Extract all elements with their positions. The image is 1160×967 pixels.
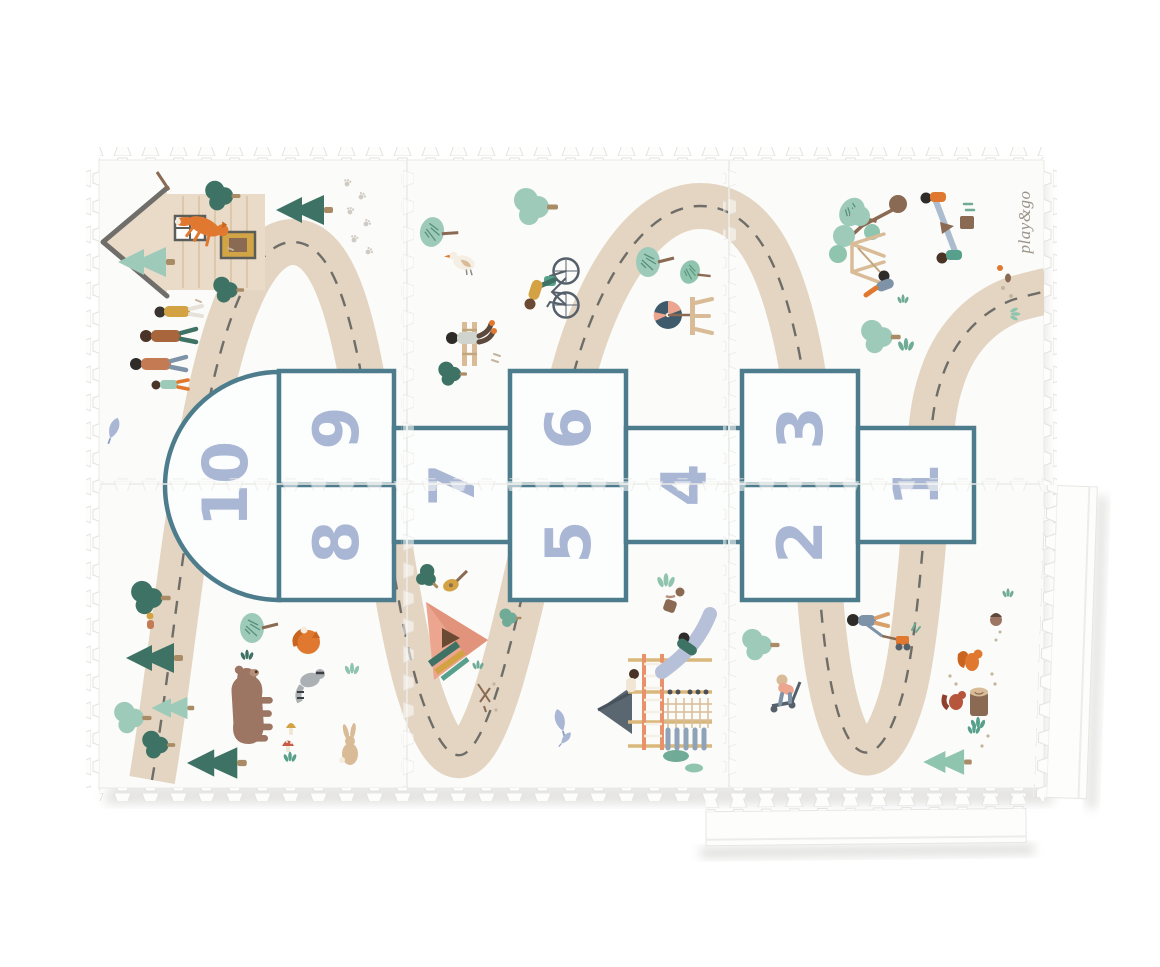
loose-edge-strip-vertical [1033,485,1107,808]
hopscotch-number: 2 [764,520,837,563]
moss-icon [663,750,689,762]
tile-seam-vertical [723,160,736,788]
hopscotch-number: 3 [764,406,837,449]
loose-edge-strip-horizontal [700,795,1035,857]
moss-icon [685,764,703,773]
mat-edge-teeth-top [99,147,1044,160]
product-photo: 10 9 8 7 6 5 4 3 2 1 play&go [0,0,1160,967]
play-mat-artwork: 10 9 8 7 6 5 4 3 2 1 play&go [0,0,1160,967]
tile-seam-horizontal [99,478,1044,491]
hopscotch-number: 8 [300,520,373,563]
tile-seam-vertical [401,160,414,788]
hopscotch-number: 5 [532,520,605,563]
hopscotch-number: 6 [532,406,605,449]
hopscotch-number: 9 [300,406,373,449]
mat-edge-teeth-left [86,160,99,788]
brand-logo: play&go [1015,191,1034,255]
